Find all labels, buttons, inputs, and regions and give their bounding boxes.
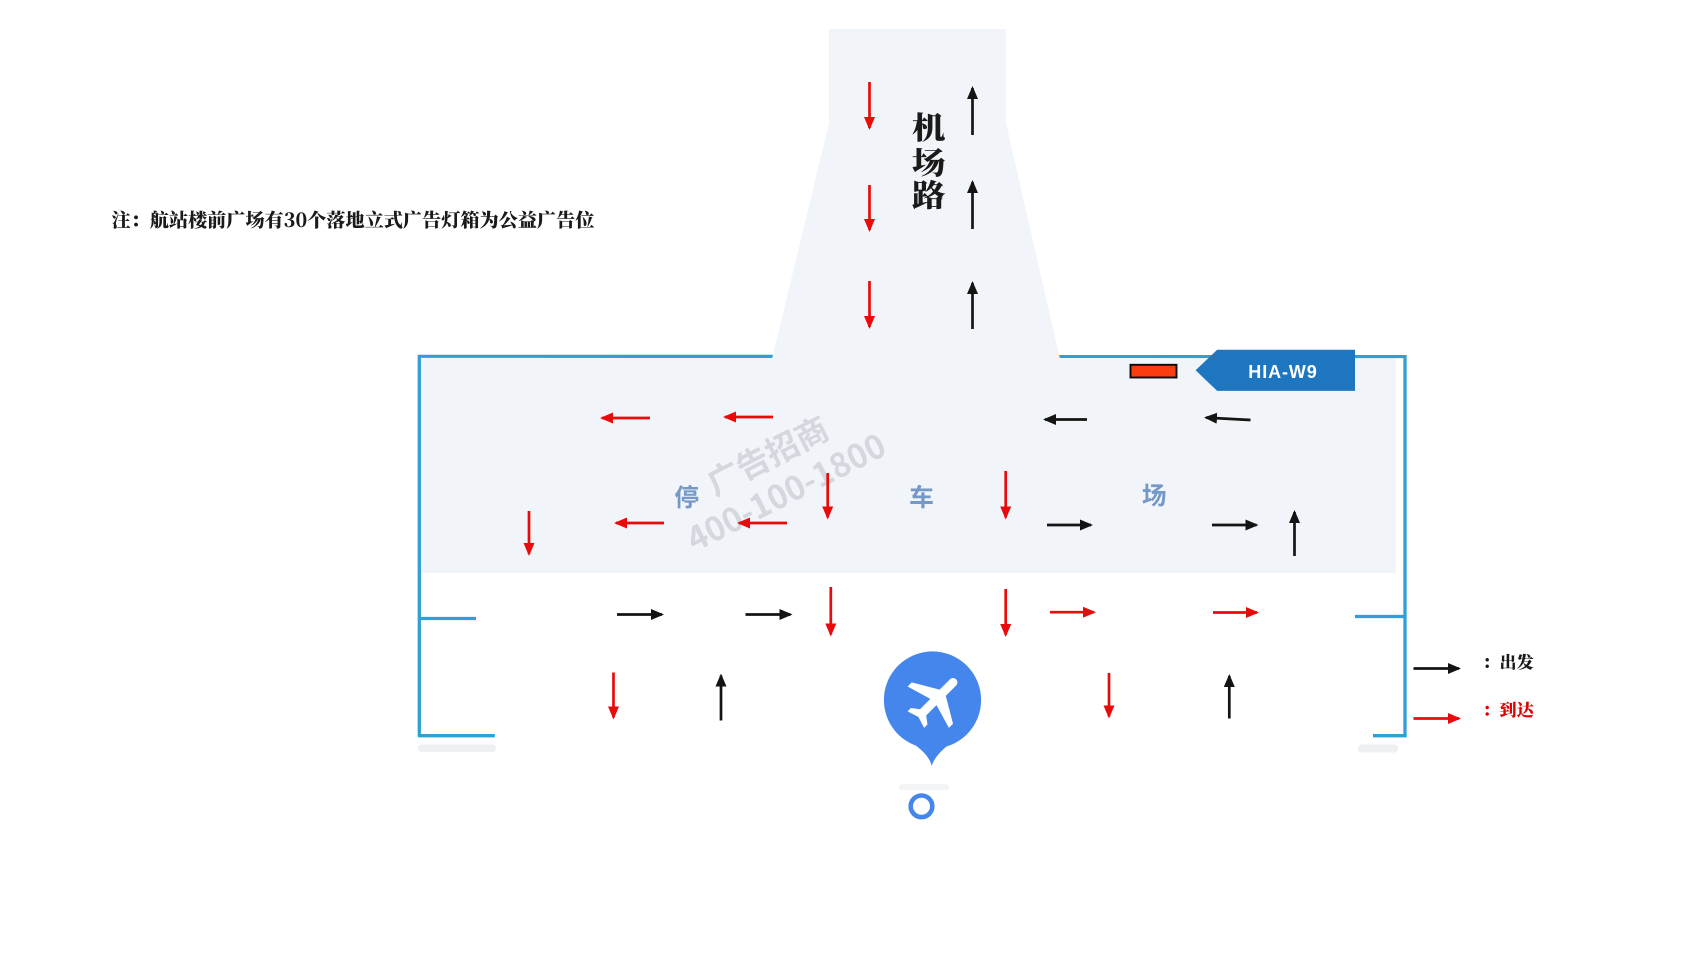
svg-text:HIA-W9: HIA-W9: [1248, 362, 1317, 382]
